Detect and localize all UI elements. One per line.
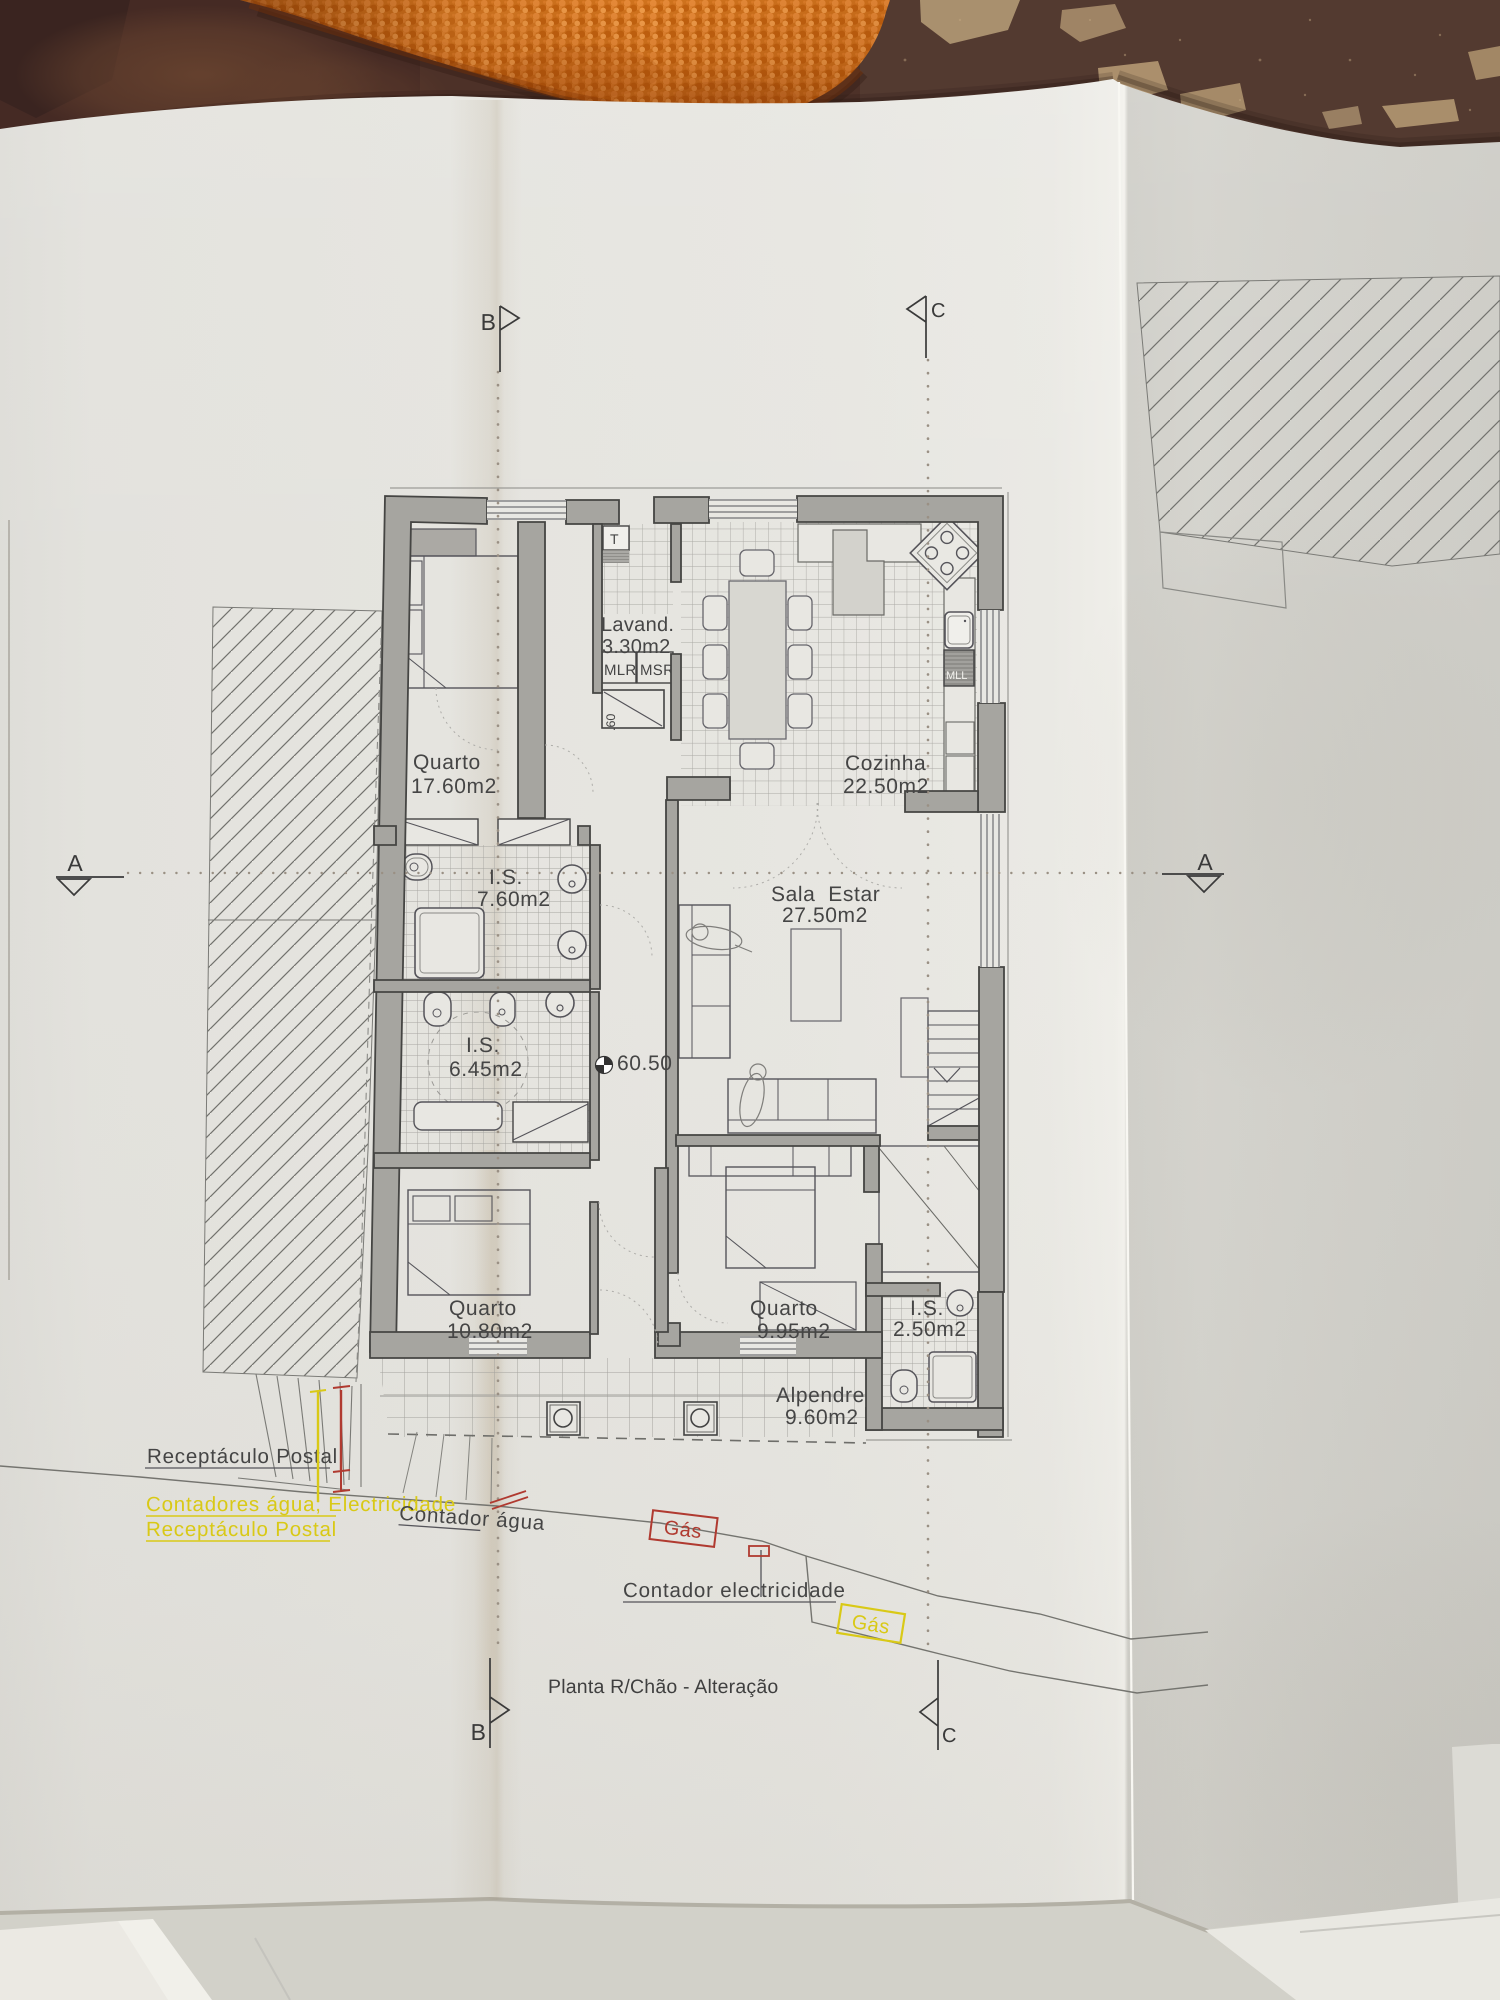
svg-text:A: A [1197,849,1213,875]
svg-text:Quarto: Quarto [413,751,481,774]
svg-text:10.80m2: 10.80m2 [447,1320,533,1343]
svg-text:Receptáculo Postal: Receptáculo Postal [147,1445,338,1468]
svg-text:MLL: MLL [946,670,967,682]
svg-text:MLR: MLR [604,662,637,679]
svg-text:Cozinha: Cozinha [845,752,926,775]
svg-text:C: C [931,300,945,322]
svg-text:Receptáculo Postal: Receptáculo Postal [146,1518,337,1541]
svg-text:7.60m2: 7.60m2 [477,888,551,911]
svg-text:B: B [481,309,496,335]
svg-text:.60: .60 [604,714,618,731]
svg-text:Planta R/Chão - Alteração: Planta R/Chão - Alteração [548,1676,778,1698]
svg-text:27.50m2: 27.50m2 [782,904,868,927]
svg-text:A: A [67,850,83,876]
svg-text:I.S.: I.S. [489,866,523,889]
svg-text:Lavand.: Lavand. [601,614,674,636]
svg-text:22.50m2: 22.50m2 [843,775,929,798]
svg-text:C: C [942,1725,956,1747]
svg-text:17.60m2: 17.60m2 [411,775,497,798]
svg-text:Quarto: Quarto [449,1297,517,1320]
svg-text:I.S.: I.S. [910,1297,944,1320]
svg-text:Alpendre: Alpendre [776,1384,865,1407]
svg-text:B: B [471,1719,486,1745]
svg-text:2.50m2: 2.50m2 [893,1318,967,1341]
svg-text:60.50: 60.50 [617,1052,673,1075]
svg-text:Gás: Gás [663,1517,704,1543]
svg-text:9.95m2: 9.95m2 [757,1320,831,1343]
svg-text:6.45m2: 6.45m2 [449,1058,523,1081]
svg-text:Sala Estar: Sala Estar [771,883,880,906]
svg-text:I.S.: I.S. [466,1034,500,1057]
svg-text:MSR: MSR [640,662,674,679]
svg-text:T: T [610,531,619,547]
svg-text:9.60m2: 9.60m2 [785,1406,859,1429]
svg-text:Quarto: Quarto [750,1297,818,1320]
svg-text:3.30m2: 3.30m2 [602,636,671,658]
svg-text:Contador electricidade: Contador electricidade [623,1579,846,1602]
